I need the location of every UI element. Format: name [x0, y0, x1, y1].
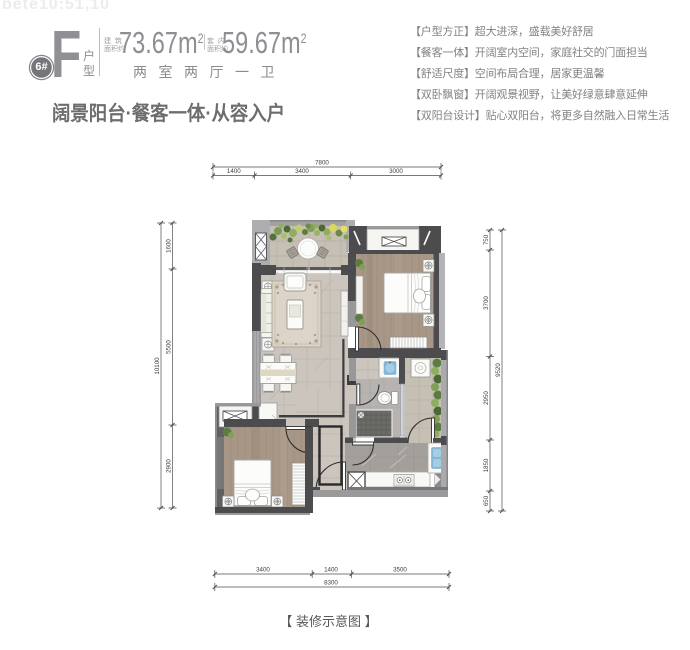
- svg-text:1600: 1600: [166, 239, 173, 253]
- svg-text:9520: 9520: [495, 363, 502, 377]
- svg-text:750: 750: [483, 234, 490, 245]
- svg-text:8300: 8300: [324, 580, 338, 587]
- svg-text:3000: 3000: [389, 168, 403, 175]
- svg-text:1400: 1400: [227, 168, 241, 175]
- svg-text:3500: 3500: [393, 567, 407, 574]
- svg-text:3400: 3400: [295, 168, 309, 175]
- svg-text:650: 650: [483, 495, 490, 506]
- svg-text:1400: 1400: [324, 567, 338, 574]
- svg-text:2950: 2950: [483, 391, 490, 405]
- svg-text:5500: 5500: [166, 340, 173, 354]
- svg-text:3400: 3400: [256, 567, 270, 574]
- svg-text:2900: 2900: [166, 459, 173, 473]
- svg-text:10100: 10100: [154, 357, 161, 375]
- svg-text:1850: 1850: [483, 458, 490, 472]
- svg-text:7800: 7800: [315, 160, 329, 167]
- svg-text:3700: 3700: [483, 296, 490, 310]
